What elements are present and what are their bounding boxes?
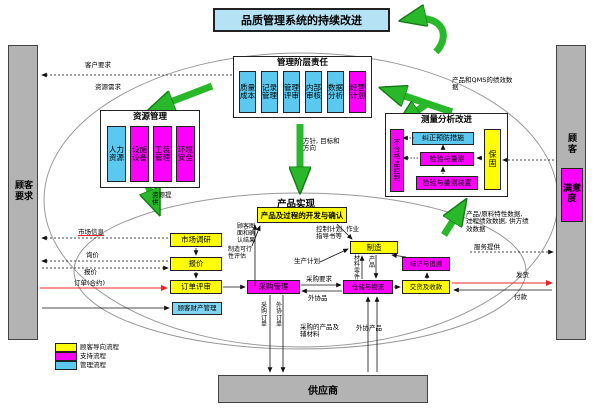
legend-yellow-swatch [55, 343, 77, 352]
customer-requirements-label: 顾客要求 [14, 181, 34, 203]
customer-satisfaction-bar: 顾客 满意度 [556, 45, 586, 340]
quality-cost-box: 质量成本 [239, 71, 256, 113]
qms-performance-note: 产品和QMS的绩效数据 [452, 77, 518, 92]
order-review-box: 订单评审 [170, 280, 222, 294]
purchase-req-note: 采购要求 [306, 276, 332, 283]
payment-note: 付款 [514, 294, 527, 301]
business-plan-box: 经营计划 [349, 71, 366, 113]
management-responsibility-group: 管理阶层责任 质量成本 记录管理 管理评审 内部审核 数据分析 经营计划 [233, 56, 372, 118]
legend-magenta-swatch [55, 352, 77, 361]
measurement-analysis-group: 测量分析改进 不合格品控制 保固 纠正预防措施 检验与量测 检验与量测装置 [385, 113, 508, 197]
continual-improvement-arrow [404, 18, 443, 52]
resource-supply-note: 资源提供 [152, 192, 176, 207]
control-plan-note: 控制计划, 作业指导书等 [316, 226, 362, 241]
market-research-box: 市场调研 [170, 233, 222, 247]
resource-demand-note: 资源需求 [95, 84, 121, 91]
legend-customer-oriented: 顾客导向流程 [55, 343, 119, 352]
policy-goal-note: 方针, 目标和方向 [303, 138, 345, 153]
purchased-products-note: 采购的产品及辅材料 [300, 324, 340, 339]
outsourced-products-note: 外协产品 [356, 325, 382, 332]
market-info-note: 市场信息 [78, 229, 104, 236]
nonconforming-control-box: 不合格品控制 [390, 129, 404, 192]
continual-improvement-banner: 品质管理系统的持续改进 [213, 8, 390, 32]
customer-drawing-note: 顾客图面和确认结果 [237, 224, 258, 245]
supplier-bar: 供应商 [218, 375, 428, 403]
customer-property-box: 顾客财产管理 [172, 302, 222, 315]
purchasing-box: 采购管理 [247, 280, 300, 294]
legend-blue-swatch [55, 361, 77, 370]
legend-management: 管理流程 [55, 361, 119, 370]
customer-label: 顾客 [567, 134, 578, 156]
environment-safety-box: 环境安全 [176, 126, 195, 182]
service-provide-note: 服务提供 [474, 244, 500, 251]
satisfaction-box: 满意度 [561, 168, 583, 222]
quotation-out-note: 报价 [84, 269, 97, 276]
performance-data-arrow [384, 89, 452, 112]
purchase-order-note: 采购订单 [261, 303, 268, 328]
shipping-note: 发货 [516, 272, 529, 279]
manufacturing-box: 制造 [350, 241, 398, 254]
product-data-note: 产品/原料特性数据, 过程绩效数据, 供方绩效数据 [466, 211, 530, 233]
measurement-title: 测量分析改进 [386, 114, 507, 125]
resources-title: 资源管理 [101, 111, 199, 122]
order-contract-note: 订单(合约) [74, 280, 105, 287]
data-analysis-box: 数据分析 [327, 71, 344, 113]
customer-requirements-bar: 顾客要求 [8, 45, 38, 340]
development-confirmation-box: 产品及过程的开发与确认 [257, 207, 347, 223]
measurement-devices-box: 检验与量测装置 [416, 176, 478, 190]
product-flow-note: 产品 [369, 257, 376, 270]
material-parts-note: 材料零件 [354, 256, 361, 281]
outsource-order-note: 外协订单 [276, 303, 283, 328]
quote-box: 报价 [170, 257, 222, 271]
human-resources-box: 人力资源 [107, 126, 126, 182]
legend: 顾客导向流程 支持流程 管理流程 [55, 343, 119, 370]
facilities-equipment-box: 设施设备 [130, 126, 149, 182]
resource-management-group: 资源管理 人力资源 设施设备 工装管理 环境安全 [100, 110, 200, 188]
resource-demand-arrow [152, 86, 212, 109]
corrective-preventive-box: 纠正预防措施 [412, 132, 474, 145]
product-data-arrow [444, 203, 464, 235]
production-plan-note: 生产计划 [294, 258, 320, 265]
delivery-payment-box: 交货及收款 [402, 280, 450, 294]
banner-label: 品质管理系统的持续改进 [241, 12, 362, 28]
warranty-box: 保固 [484, 129, 501, 190]
feasibility-note: 制造可行性评估 [228, 247, 256, 261]
traceability-box: 标识与追溯 [402, 257, 450, 271]
warehouse-logistics-box: 仓储与物流 [343, 280, 393, 294]
management-title: 管理阶层责任 [234, 57, 371, 68]
outsourced-item-note: 外协品 [308, 295, 328, 302]
inquiry-note: 询价 [86, 252, 99, 259]
tooling-management-box: 工装管理 [153, 126, 172, 182]
records-management-box: 记录管理 [261, 71, 278, 113]
customer-requirement-note: 客户要求 [85, 62, 111, 69]
management-review-box: 管理评审 [283, 71, 300, 113]
internal-audit-box: 内部审核 [305, 71, 322, 113]
qms-process-diagram: 顾客要求 顾客 满意度 品质管理系统的持续改进 管理阶层责任 质量成本 记录管理… [0, 0, 600, 414]
legend-support: 支持流程 [55, 352, 119, 361]
inspection-measurement-box: 检验与量测 [420, 152, 474, 166]
